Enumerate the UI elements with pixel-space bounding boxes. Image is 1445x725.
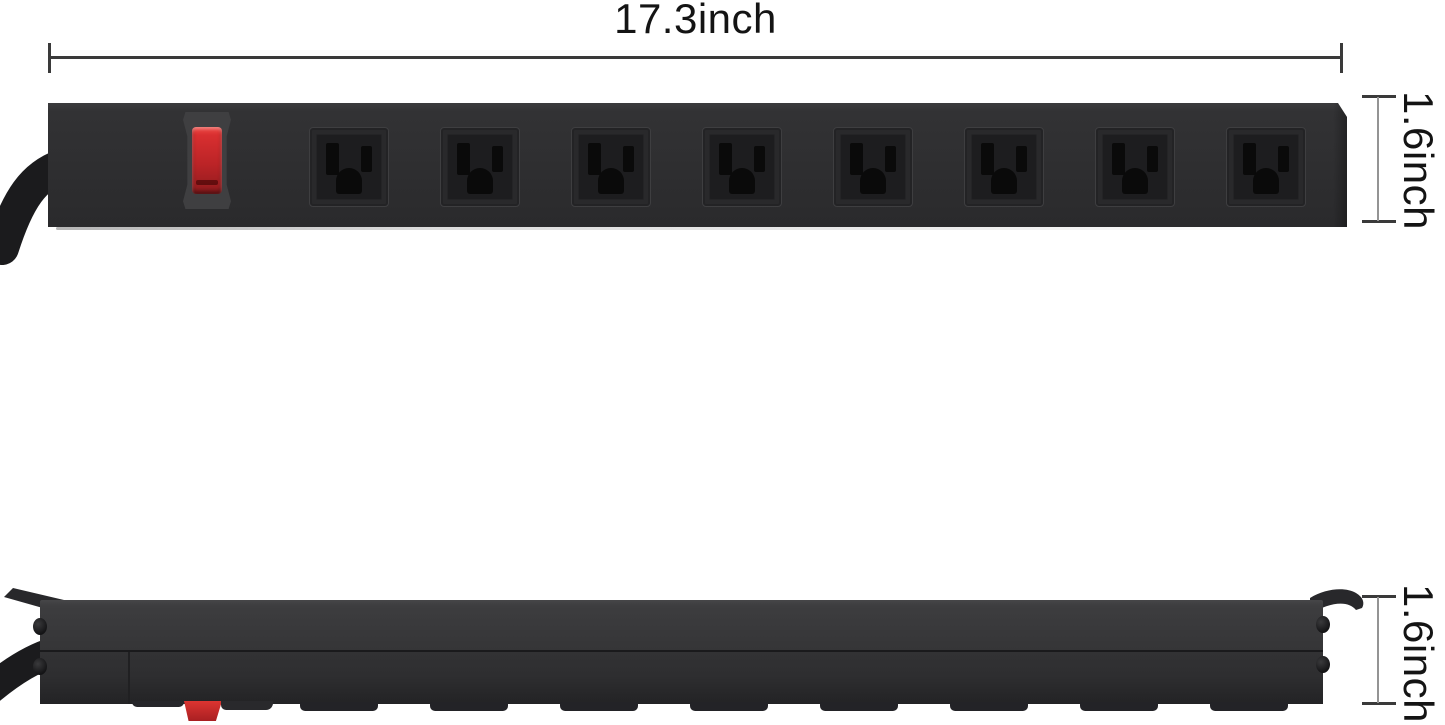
ground-slot bbox=[598, 168, 624, 194]
front-height-label: 1.6inch bbox=[1391, 90, 1445, 230]
screw-head bbox=[1316, 656, 1330, 673]
product-dimension-diagram: 17.3inch bbox=[0, 0, 1445, 725]
neutral-slot bbox=[457, 143, 470, 175]
outlet-foot-8 bbox=[1210, 702, 1288, 711]
ground-slot bbox=[729, 168, 755, 194]
neutral-slot bbox=[1243, 143, 1256, 175]
outlet-recess bbox=[578, 134, 644, 200]
side-view-endcap-seam bbox=[128, 652, 130, 704]
ground-slot bbox=[467, 168, 493, 194]
strip-bottom-edge-highlight bbox=[56, 227, 1328, 230]
ground-slot bbox=[991, 168, 1017, 194]
hot-slot bbox=[1147, 146, 1158, 172]
side-view-upper-half bbox=[40, 600, 1323, 650]
power-switch-profile bbox=[184, 701, 222, 721]
outlet-foot-6 bbox=[950, 702, 1028, 711]
side-height-line bbox=[1377, 597, 1379, 703]
neutral-slot bbox=[719, 143, 732, 175]
side-view-lower-half bbox=[40, 652, 1323, 704]
outlet-6 bbox=[964, 127, 1044, 207]
outlet-7 bbox=[1095, 127, 1175, 207]
screw-head bbox=[33, 618, 47, 635]
outlet-1 bbox=[309, 127, 389, 207]
power-switch bbox=[183, 112, 231, 209]
power-switch-rocker bbox=[192, 127, 222, 194]
power-strip-front-view bbox=[48, 103, 1347, 227]
screw-head bbox=[33, 658, 47, 675]
hot-slot bbox=[1016, 146, 1027, 172]
outlet-recess bbox=[316, 134, 382, 200]
ground-slot bbox=[1122, 168, 1148, 194]
strip-end-shade bbox=[1333, 103, 1347, 227]
outlet-recess bbox=[971, 134, 1037, 200]
neutral-slot bbox=[981, 143, 994, 175]
outlet-3 bbox=[571, 127, 651, 207]
outlet-recess bbox=[840, 134, 906, 200]
outlet-recess bbox=[709, 134, 775, 200]
screw-head bbox=[1316, 616, 1330, 633]
outlet-foot-3 bbox=[560, 702, 638, 711]
switch-foot-step bbox=[132, 701, 184, 707]
outlet-5 bbox=[833, 127, 913, 207]
ground-slot bbox=[336, 168, 362, 194]
neutral-slot bbox=[326, 143, 339, 175]
hot-slot bbox=[1278, 146, 1289, 172]
outlet-foot-7 bbox=[1080, 702, 1158, 711]
outlet-recess bbox=[1233, 134, 1299, 200]
hot-slot bbox=[885, 146, 896, 172]
outlet-recess bbox=[447, 134, 513, 200]
power-switch-marking bbox=[196, 180, 218, 185]
hot-slot bbox=[623, 146, 634, 172]
width-dimension-tick-right bbox=[1340, 43, 1343, 73]
side-height-label: 1.6inch bbox=[1391, 583, 1445, 723]
outlet-8 bbox=[1226, 127, 1306, 207]
power-switch-bezel-profile bbox=[221, 701, 273, 710]
neutral-slot bbox=[1112, 143, 1125, 175]
outlet-recess bbox=[1102, 134, 1168, 200]
power-strip-side-view bbox=[40, 600, 1323, 704]
width-dimension-line bbox=[48, 56, 1343, 59]
neutral-slot bbox=[850, 143, 863, 175]
front-height-line bbox=[1377, 97, 1379, 221]
ground-slot bbox=[860, 168, 886, 194]
outlet-4 bbox=[702, 127, 782, 207]
width-dimension-label: 17.3inch bbox=[48, 0, 1343, 40]
outlet-foot-4 bbox=[690, 702, 768, 711]
width-dimension-tick-left bbox=[48, 43, 51, 73]
hot-slot bbox=[754, 146, 765, 172]
outlet-foot-2 bbox=[430, 702, 508, 711]
ground-slot bbox=[1253, 168, 1279, 194]
outlet-foot-5 bbox=[820, 702, 898, 711]
hot-slot bbox=[361, 146, 372, 172]
hot-slot bbox=[492, 146, 503, 172]
outlet-foot-1 bbox=[300, 702, 378, 711]
neutral-slot bbox=[588, 143, 601, 175]
outlet-2 bbox=[440, 127, 520, 207]
